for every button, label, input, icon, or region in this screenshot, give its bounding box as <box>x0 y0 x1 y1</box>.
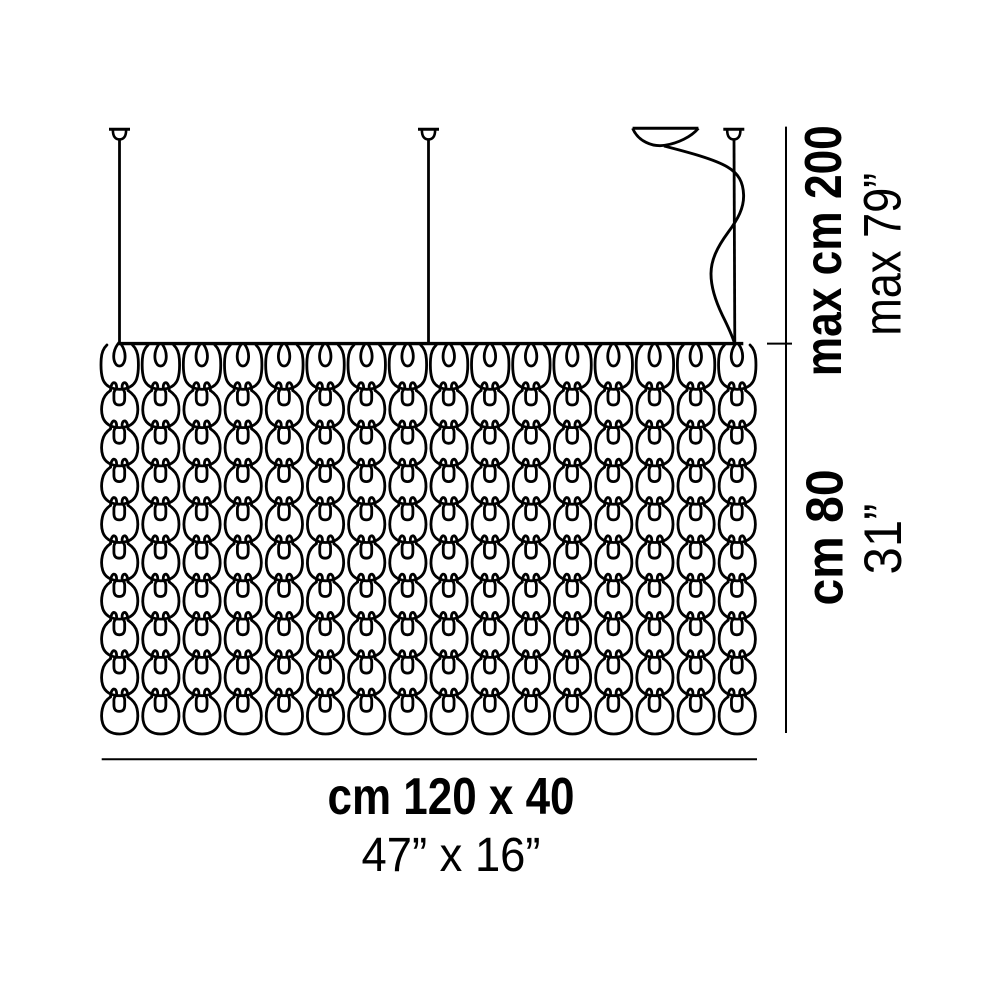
svg-text:31”: 31” <box>854 504 913 575</box>
svg-text:max 79”: max 79” <box>854 173 913 336</box>
svg-text:cm 120 x 40: cm 120 x 40 <box>328 768 575 826</box>
svg-text:47” x 16”: 47” x 16” <box>362 829 541 882</box>
svg-text:cm 80: cm 80 <box>797 470 855 606</box>
svg-text:max cm 200: max cm 200 <box>795 125 853 376</box>
